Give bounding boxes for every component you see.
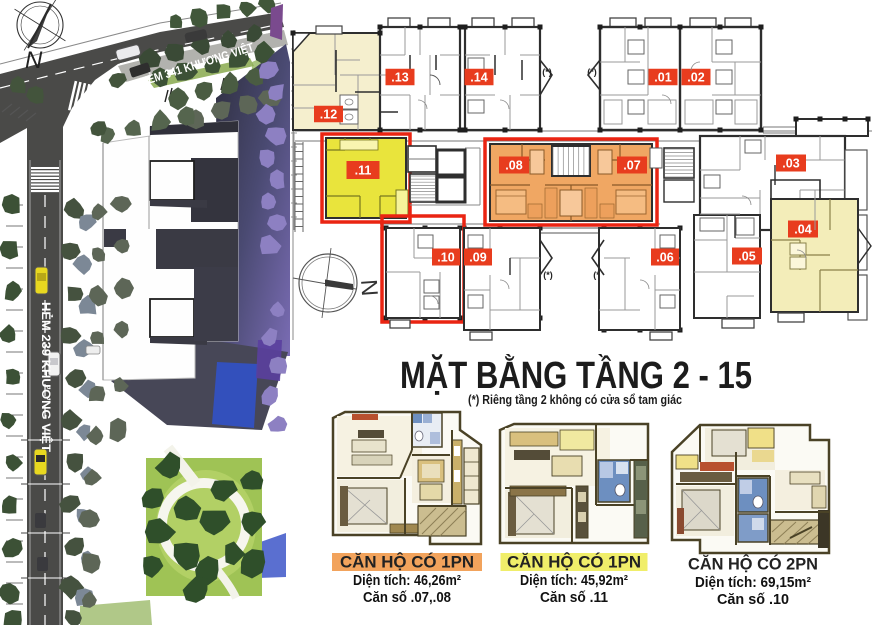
svg-text:.07: .07 xyxy=(623,159,640,173)
svg-text:Căn số .07,.08: Căn số .07,.08 xyxy=(363,590,451,606)
svg-text:.13: .13 xyxy=(391,71,408,85)
svg-text:.03: .03 xyxy=(782,157,799,171)
svg-text:CĂN HỘ CÓ 1PN: CĂN HỘ CÓ 1PN xyxy=(507,553,641,572)
svg-text:.10: .10 xyxy=(437,251,454,265)
svg-text:.08: .08 xyxy=(505,159,522,173)
svg-text:Diện tích: 69,15m²: Diện tích: 69,15m² xyxy=(695,575,811,591)
svg-text:.01: .01 xyxy=(654,71,671,85)
svg-text:.02: .02 xyxy=(687,71,704,85)
svg-text:Diện tích: 45,92m²: Diện tích: 45,92m² xyxy=(520,573,628,589)
svg-text:N: N xyxy=(356,279,383,297)
svg-text:(*): (*) xyxy=(543,270,553,280)
svg-text:Căn số .11: Căn số .11 xyxy=(540,590,608,606)
svg-text:HẺM 239 KHƯƠNG VIỆT: HẺM 239 KHƯƠNG VIỆT xyxy=(39,302,54,453)
svg-text:.12: .12 xyxy=(320,108,337,122)
svg-text:CĂN HỘ CÓ 2PN: CĂN HỘ CÓ 2PN xyxy=(688,555,818,574)
svg-text:.09: .09 xyxy=(469,251,486,265)
svg-text:Căn số .10: Căn số .10 xyxy=(717,592,789,608)
svg-text:MẶT BẰNG TẦNG 2 - 15: MẶT BẰNG TẦNG 2 - 15 xyxy=(400,353,752,397)
svg-text:.04: .04 xyxy=(794,223,811,237)
svg-text:.05: .05 xyxy=(738,250,755,264)
svg-text:N: N xyxy=(25,47,43,74)
svg-text:.06: .06 xyxy=(656,251,673,265)
svg-text:CĂN HỘ CÓ 1PN: CĂN HỘ CÓ 1PN xyxy=(340,553,474,572)
svg-text:Diện tích: 46,26m²: Diện tích: 46,26m² xyxy=(353,573,461,589)
svg-text:.11: .11 xyxy=(355,164,372,178)
svg-text:(*): (*) xyxy=(542,67,552,77)
svg-text:(*) Riêng tầng 2 không có cửa: (*) Riêng tầng 2 không có cửa sổ tam giá… xyxy=(468,393,682,407)
svg-text:.14: .14 xyxy=(470,71,487,85)
